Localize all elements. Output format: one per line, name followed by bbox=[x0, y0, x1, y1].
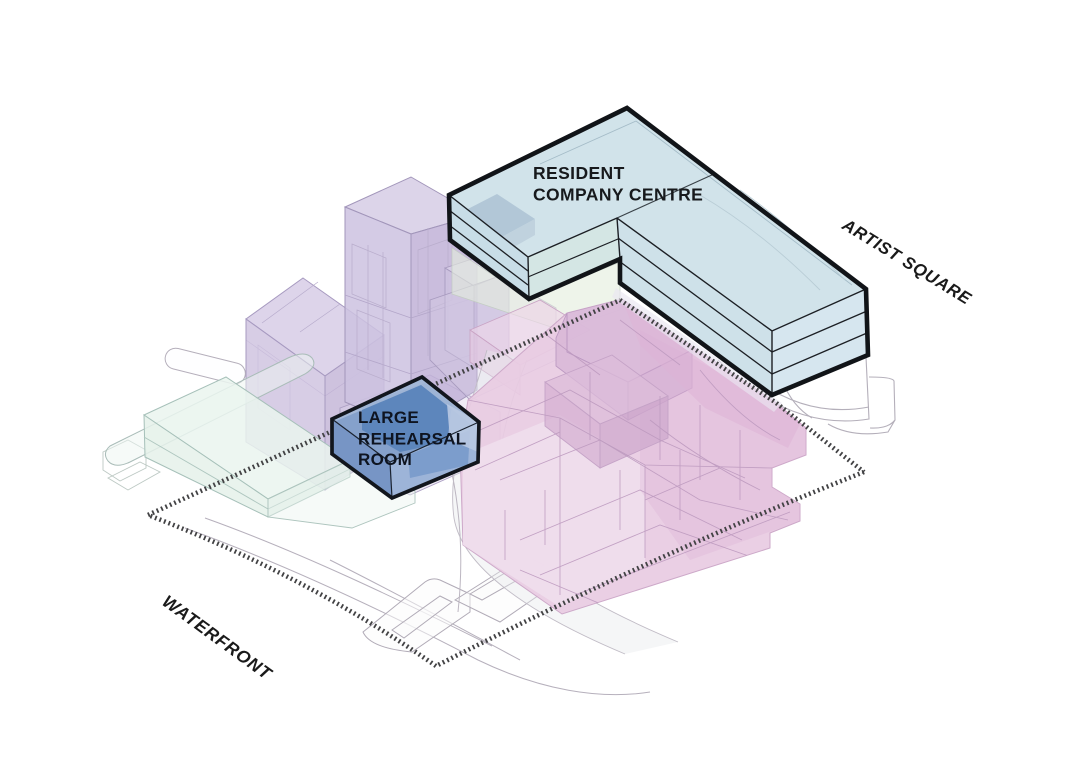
svg-text:RESIDENT: RESIDENT bbox=[533, 163, 625, 183]
svg-text:COMPANY CENTRE: COMPANY CENTRE bbox=[533, 185, 703, 205]
svg-text:ROOM: ROOM bbox=[358, 450, 412, 469]
svg-text:LARGE: LARGE bbox=[358, 408, 419, 427]
svg-text:REHEARSAL: REHEARSAL bbox=[358, 430, 467, 449]
